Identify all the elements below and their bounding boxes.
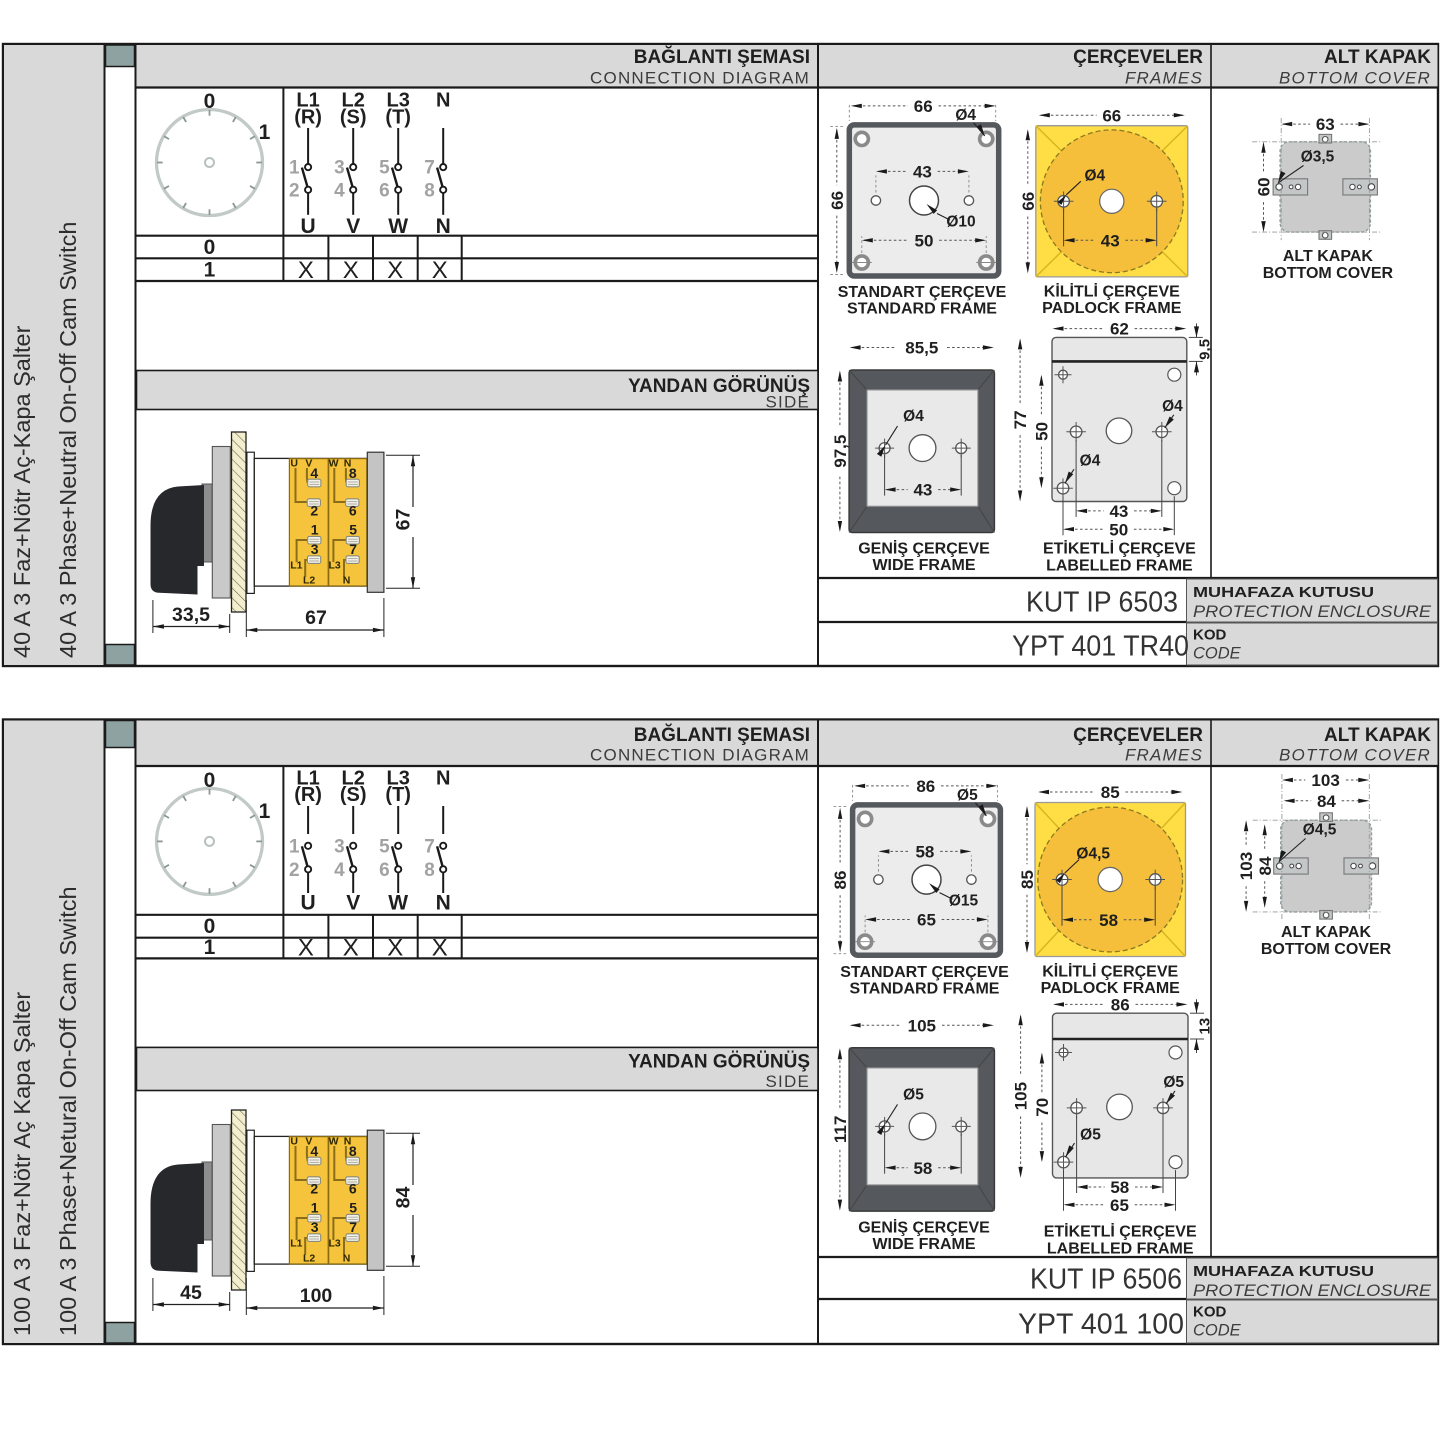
svg-text:BOTTOM COVER: BOTTOM COVER <box>1263 265 1394 282</box>
svg-text:1: 1 <box>289 158 300 179</box>
svg-text:L2: L2 <box>303 1253 315 1265</box>
svg-text:117: 117 <box>831 1116 850 1143</box>
svg-text:X: X <box>387 935 403 962</box>
svg-text:KOD: KOD <box>1193 1304 1227 1321</box>
svg-text:ALT KAPAK: ALT KAPAK <box>1281 924 1372 941</box>
svg-text:KUT IP 6506: KUT IP 6506 <box>1030 1264 1182 1296</box>
svg-text:45: 45 <box>180 1282 202 1304</box>
svg-text:BAĞLANTI ŞEMASI: BAĞLANTI ŞEMASI <box>634 46 810 68</box>
svg-text:33,5: 33,5 <box>172 604 210 626</box>
svg-text:FRAMES: FRAMES <box>1125 746 1203 765</box>
svg-text:1: 1 <box>311 521 319 537</box>
svg-text:L1: L1 <box>290 560 302 572</box>
svg-text:2: 2 <box>310 503 318 519</box>
svg-text:L1: L1 <box>290 1238 302 1250</box>
svg-text:84: 84 <box>1317 792 1336 811</box>
svg-text:1: 1 <box>259 121 271 144</box>
svg-text:4: 4 <box>334 180 345 201</box>
svg-text:40 A 3 Phase+Neutral On-Off Ca: 40 A 3 Phase+Neutral On-Off Cam Switch <box>55 222 81 659</box>
svg-text:N: N <box>436 768 450 790</box>
svg-text:W: W <box>329 458 339 470</box>
svg-text:LABELLED FRAME: LABELLED FRAME <box>1047 1240 1194 1257</box>
svg-text:L2: L2 <box>303 575 315 587</box>
svg-text:86: 86 <box>916 777 935 796</box>
svg-text:FRAMES: FRAMES <box>1125 69 1203 88</box>
svg-text:X: X <box>432 935 448 962</box>
svg-text:L3: L3 <box>328 1238 340 1250</box>
svg-text:3: 3 <box>311 1219 319 1235</box>
svg-text:GENİŞ ÇERÇEVE: GENİŞ ÇERÇEVE <box>858 1219 990 1237</box>
svg-text:X: X <box>387 257 403 284</box>
svg-text:Ø4: Ø4 <box>1162 398 1183 415</box>
svg-text:U: U <box>301 215 316 238</box>
svg-text:62: 62 <box>1110 320 1129 339</box>
svg-text:STANDART ÇERÇEVE: STANDART ÇERÇEVE <box>838 284 1007 301</box>
svg-text:58: 58 <box>1099 911 1118 930</box>
svg-text:58: 58 <box>913 1159 932 1178</box>
svg-text:KİLİTLİ ÇERÇEVE: KİLİTLİ ÇERÇEVE <box>1044 283 1180 301</box>
svg-text:Ø4: Ø4 <box>955 107 976 124</box>
svg-text:(S): (S) <box>340 784 367 806</box>
svg-text:1: 1 <box>204 936 216 959</box>
svg-text:63: 63 <box>1316 115 1335 134</box>
svg-text:5: 5 <box>379 836 390 857</box>
svg-text:WIDE FRAME: WIDE FRAME <box>872 1236 975 1253</box>
svg-text:BAĞLANTI ŞEMASI: BAĞLANTI ŞEMASI <box>634 724 810 746</box>
svg-text:2: 2 <box>289 180 300 201</box>
svg-text:66: 66 <box>914 97 933 116</box>
svg-text:13: 13 <box>1197 1018 1214 1035</box>
svg-text:U: U <box>290 458 298 470</box>
svg-text:85: 85 <box>1018 870 1037 889</box>
svg-text:W: W <box>388 892 408 915</box>
svg-text:BOTTOM COVER: BOTTOM COVER <box>1261 941 1392 958</box>
svg-text:BOTTOM COVER: BOTTOM COVER <box>1279 69 1431 88</box>
svg-text:6: 6 <box>379 860 390 881</box>
svg-text:Ø4: Ø4 <box>1084 167 1105 184</box>
svg-text:4: 4 <box>334 860 345 881</box>
svg-text:Ø10: Ø10 <box>946 214 975 231</box>
svg-text:PADLOCK FRAME: PADLOCK FRAME <box>1042 300 1182 317</box>
svg-text:YPT 401 TR40: YPT 401 TR40 <box>1012 631 1189 663</box>
svg-text:(T): (T) <box>385 784 411 806</box>
svg-text:LABELLED FRAME: LABELLED FRAME <box>1046 557 1193 574</box>
svg-text:W: W <box>388 215 408 238</box>
svg-text:Ø5: Ø5 <box>903 1086 924 1103</box>
svg-text:Ø5: Ø5 <box>1080 1127 1101 1144</box>
svg-text:2: 2 <box>310 1181 318 1197</box>
svg-text:85: 85 <box>1101 783 1120 802</box>
svg-text:84: 84 <box>393 1187 415 1209</box>
svg-text:CODE: CODE <box>1193 1322 1242 1340</box>
svg-text:1: 1 <box>289 836 300 857</box>
svg-text:U: U <box>290 1136 298 1148</box>
svg-text:8: 8 <box>424 860 435 881</box>
svg-text:65: 65 <box>1110 1196 1129 1215</box>
svg-text:N: N <box>343 1253 351 1265</box>
svg-text:67: 67 <box>393 509 415 531</box>
svg-text:CODE: CODE <box>1193 645 1242 663</box>
svg-text:N: N <box>436 215 451 238</box>
svg-text:STANDARD FRAME: STANDARD FRAME <box>847 300 997 317</box>
svg-text:77: 77 <box>1011 410 1030 429</box>
svg-text:W: W <box>329 1136 339 1148</box>
svg-text:86: 86 <box>1111 996 1130 1015</box>
svg-text:43: 43 <box>913 481 932 500</box>
svg-text:43: 43 <box>1101 231 1120 250</box>
svg-text:1: 1 <box>204 259 216 282</box>
svg-text:ETİKETLİ ÇERÇEVE: ETİKETLİ ÇERÇEVE <box>1043 540 1196 558</box>
svg-text:50: 50 <box>915 231 934 250</box>
svg-text:N: N <box>436 892 451 915</box>
svg-text:BOTTOM COVER: BOTTOM COVER <box>1279 746 1431 765</box>
svg-text:CONNECTION DIAGRAM: CONNECTION DIAGRAM <box>590 746 810 765</box>
svg-text:N: N <box>436 90 450 112</box>
svg-text:6: 6 <box>349 1181 357 1197</box>
svg-text:40 A 3 Faz+Nötr Aç-Kapa Şalter: 40 A 3 Faz+Nötr Aç-Kapa Şalter <box>9 325 35 658</box>
svg-text:66: 66 <box>828 191 847 210</box>
svg-text:L3: L3 <box>328 560 340 572</box>
svg-text:4: 4 <box>310 465 318 481</box>
svg-text:X: X <box>343 257 359 284</box>
svg-text:V: V <box>346 892 360 915</box>
svg-text:SIDE: SIDE <box>766 1072 810 1091</box>
svg-text:U: U <box>301 892 316 915</box>
svg-text:4: 4 <box>310 1143 318 1159</box>
svg-text:PROTECTION ENCLOSURE: PROTECTION ENCLOSURE <box>1193 603 1432 621</box>
svg-text:8: 8 <box>424 180 435 201</box>
svg-text:100 A 3 Phase+Netural On-Off C: 100 A 3 Phase+Netural On-Off Cam Switch <box>55 886 81 1336</box>
svg-text:5: 5 <box>349 521 357 537</box>
svg-text:5: 5 <box>379 158 390 179</box>
svg-text:ETİKETLİ ÇERÇEVE: ETİKETLİ ÇERÇEVE <box>1044 1223 1197 1241</box>
svg-text:ÇERÇEVELER: ÇERÇEVELER <box>1073 47 1203 68</box>
svg-text:X: X <box>432 257 448 284</box>
svg-text:97,5: 97,5 <box>831 435 850 468</box>
svg-text:66: 66 <box>1019 192 1038 211</box>
svg-text:WIDE FRAME: WIDE FRAME <box>872 557 975 574</box>
svg-text:X: X <box>343 935 359 962</box>
svg-text:3: 3 <box>334 158 345 179</box>
svg-text:MUHAFAZA KUTUSU: MUHAFAZA KUTUSU <box>1193 584 1374 601</box>
svg-text:ALT KAPAK: ALT KAPAK <box>1324 47 1431 68</box>
svg-text:58: 58 <box>1110 1178 1129 1197</box>
svg-text:Ø5: Ø5 <box>957 787 978 804</box>
svg-text:Ø4: Ø4 <box>1080 453 1101 470</box>
svg-text:7: 7 <box>424 158 435 179</box>
svg-text:3: 3 <box>334 836 345 857</box>
svg-text:X: X <box>298 257 314 284</box>
svg-text:1: 1 <box>311 1199 319 1215</box>
svg-text:PADLOCK FRAME: PADLOCK FRAME <box>1041 980 1181 997</box>
svg-text:50: 50 <box>1033 422 1052 441</box>
svg-text:7: 7 <box>349 541 357 557</box>
svg-text:86: 86 <box>831 871 850 890</box>
svg-text:Ø4,5: Ø4,5 <box>1076 846 1110 863</box>
svg-text:SIDE: SIDE <box>766 393 810 412</box>
svg-text:105: 105 <box>1012 1082 1031 1110</box>
svg-text:3: 3 <box>311 541 319 557</box>
svg-text:105: 105 <box>908 1016 936 1035</box>
svg-text:43: 43 <box>1109 502 1128 521</box>
svg-text:7: 7 <box>349 1219 357 1235</box>
svg-text:YPT 401 100: YPT 401 100 <box>1018 1309 1184 1341</box>
svg-text:V: V <box>346 215 360 238</box>
svg-text:KİLİTLİ ÇERÇEVE: KİLİTLİ ÇERÇEVE <box>1042 963 1178 981</box>
svg-text:KUT IP 6503: KUT IP 6503 <box>1026 587 1178 619</box>
svg-text:60: 60 <box>1255 177 1274 196</box>
svg-text:65: 65 <box>917 911 936 930</box>
svg-text:Ø4,5: Ø4,5 <box>1303 822 1337 839</box>
svg-text:50: 50 <box>1109 520 1128 539</box>
svg-text:(R): (R) <box>294 107 322 129</box>
svg-text:STANDART ÇERÇEVE: STANDART ÇERÇEVE <box>840 964 1009 981</box>
svg-text:103: 103 <box>1237 852 1256 880</box>
svg-text:STANDARD FRAME: STANDARD FRAME <box>850 980 1000 997</box>
svg-text:5: 5 <box>349 1199 357 1215</box>
svg-text:8: 8 <box>349 1143 357 1159</box>
svg-text:Ø4: Ø4 <box>903 408 924 425</box>
svg-text:103: 103 <box>1311 771 1339 790</box>
svg-text:YANDAN GÖRÜNÜŞ: YANDAN GÖRÜNÜŞ <box>628 1051 810 1072</box>
svg-text:2: 2 <box>289 860 300 881</box>
svg-text:ALT KAPAK: ALT KAPAK <box>1283 248 1374 265</box>
svg-text:66: 66 <box>1102 106 1121 125</box>
svg-text:KOD: KOD <box>1193 627 1227 644</box>
svg-text:0: 0 <box>204 236 216 259</box>
svg-text:85,5: 85,5 <box>905 339 938 358</box>
svg-text:Ø5: Ø5 <box>1163 1074 1184 1091</box>
svg-text:Ø3,5: Ø3,5 <box>1301 149 1335 166</box>
svg-text:9,5: 9,5 <box>1197 339 1214 360</box>
svg-text:(R): (R) <box>294 784 322 806</box>
svg-text:CONNECTION DIAGRAM: CONNECTION DIAGRAM <box>590 69 810 88</box>
svg-text:70: 70 <box>1033 1098 1052 1117</box>
svg-text:58: 58 <box>915 843 934 862</box>
svg-text:PROTECTION ENCLOSURE: PROTECTION ENCLOSURE <box>1193 1282 1432 1300</box>
svg-text:67: 67 <box>305 607 327 629</box>
svg-text:100 A 3 Faz+Nötr Aç Kapa Şalte: 100 A 3 Faz+Nötr Aç Kapa Şalter <box>9 992 35 1336</box>
svg-text:0: 0 <box>204 915 216 938</box>
svg-text:ALT KAPAK: ALT KAPAK <box>1324 725 1431 746</box>
svg-text:43: 43 <box>913 163 932 182</box>
svg-text:Ø15: Ø15 <box>949 893 979 910</box>
svg-text:1: 1 <box>259 800 271 823</box>
svg-text:GENİŞ ÇERÇEVE: GENİŞ ÇERÇEVE <box>858 540 990 558</box>
svg-text:84: 84 <box>1256 856 1275 875</box>
svg-text:7: 7 <box>424 836 435 857</box>
svg-text:(T): (T) <box>385 107 411 129</box>
svg-text:(S): (S) <box>340 107 367 129</box>
svg-text:X: X <box>298 935 314 962</box>
svg-text:N: N <box>343 575 351 587</box>
svg-text:6: 6 <box>379 180 390 201</box>
svg-text:100: 100 <box>300 1285 333 1307</box>
svg-text:ÇERÇEVELER: ÇERÇEVELER <box>1073 725 1203 746</box>
svg-text:8: 8 <box>349 465 357 481</box>
svg-text:MUHAFAZA KUTUSU: MUHAFAZA KUTUSU <box>1193 1263 1374 1280</box>
svg-text:6: 6 <box>349 503 357 519</box>
svg-text:0: 0 <box>204 769 216 792</box>
svg-text:0: 0 <box>204 90 216 113</box>
